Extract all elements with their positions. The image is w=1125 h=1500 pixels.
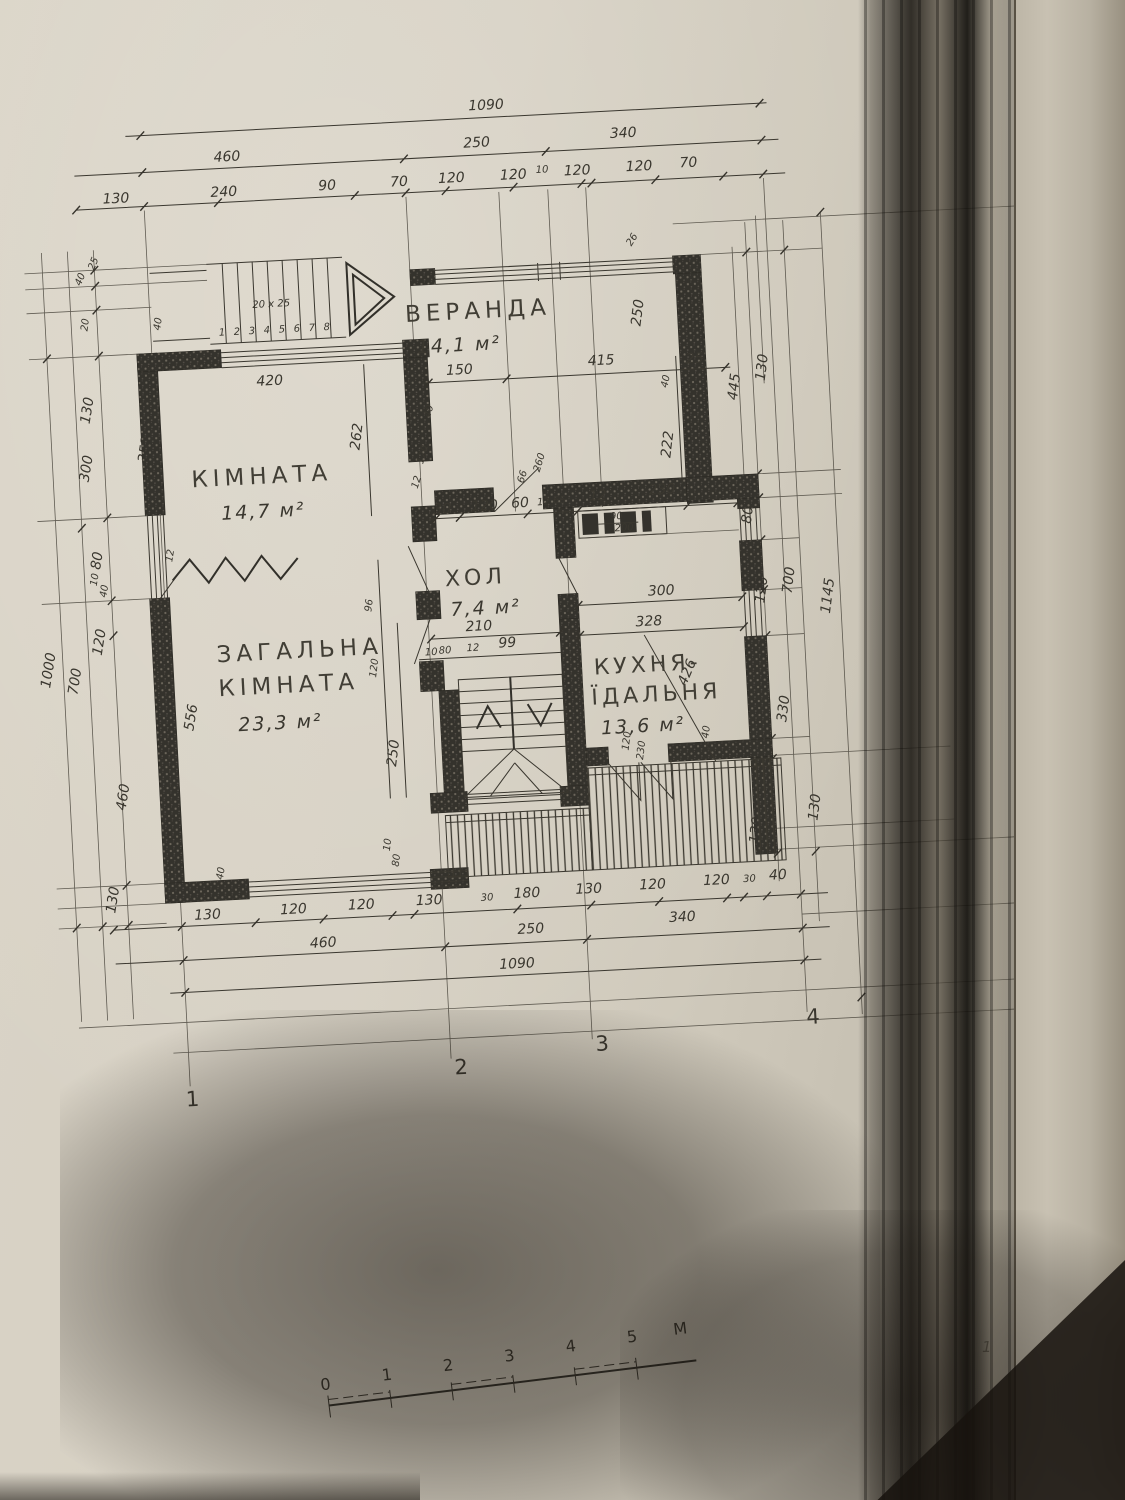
scale-tick: 5: [626, 1327, 638, 1347]
dim-label: 30: [480, 892, 493, 904]
dim-label: 330: [774, 694, 793, 723]
dim-label: 70: [390, 174, 409, 191]
step-number: 4: [263, 325, 270, 336]
dim-label: 30: [743, 873, 756, 885]
dim-label: 300: [648, 582, 676, 599]
dim-label: 120: [438, 170, 466, 187]
room-area-living: 23,3 м²: [238, 710, 323, 736]
dim-label: 210: [465, 618, 493, 635]
dim-label: 1090: [468, 97, 505, 115]
room-area-hall: 7,4 м²: [450, 595, 521, 621]
dim-label: 26: [624, 232, 640, 249]
dim-label: 25: [685, 350, 704, 367]
dim-label: 1090: [499, 955, 536, 973]
dim-label: 130: [805, 793, 824, 822]
dim-label: 120: [348, 896, 376, 913]
photo-scene: 1090 460 250 340 130 240 90 70 120 120 1…: [0, 0, 1125, 1500]
dim-label: 40: [98, 584, 111, 598]
dim-label: 20: [79, 318, 91, 332]
dim-label: 1145: [818, 577, 838, 614]
dim-label: 230: [648, 481, 676, 498]
dim-label: 120: [471, 497, 499, 514]
dim-label: 40: [700, 725, 712, 739]
stair-note: 20 х 25: [252, 298, 290, 311]
dim-label: 460: [309, 934, 337, 951]
room-label-living-2: КІМНАТА: [218, 669, 360, 702]
step-number: 5: [278, 324, 285, 335]
dim-label: 230: [635, 740, 648, 760]
dim-label: 130: [102, 190, 130, 207]
dim-label: 340: [610, 125, 638, 142]
dim-label: 1000: [38, 652, 59, 690]
dim-label: 250: [384, 739, 403, 768]
dim-label: 328: [635, 613, 663, 630]
dim-label: 12: [466, 643, 479, 655]
interior-staircase: [458, 674, 568, 797]
step-number: 7: [308, 323, 316, 334]
dim-label: 12: [410, 475, 424, 490]
entrance-door-symbol: [346, 261, 396, 335]
dim-label: 130: [78, 396, 98, 425]
axis-label: 1: [185, 1087, 200, 1112]
dim-label: 130: [575, 880, 603, 897]
flue-block: [578, 503, 739, 538]
room-label-room: КІМНАТА: [191, 460, 333, 493]
dim-label: 250: [463, 134, 491, 151]
dim-label: 130: [194, 906, 222, 923]
dim-label: 120: [625, 158, 653, 175]
entrance-stairs: 20 х 25 1 2 3 4 5 6 7 8: [149, 255, 396, 348]
dim-label: 10: [382, 838, 394, 852]
dim-label: 340: [669, 909, 697, 926]
scale-tick: 3: [503, 1346, 515, 1366]
dim-label: 460: [114, 783, 134, 812]
page-edge: [1014, 0, 1125, 1500]
dim-label: 120: [703, 872, 731, 889]
scale-bar: 0 1 2 3 4 5 М: [318, 1318, 698, 1418]
axis-label: 3: [595, 1031, 610, 1056]
dim-label: 700: [780, 566, 799, 595]
dim-label: 70: [679, 155, 698, 172]
dim-label: 120: [90, 628, 110, 657]
axis-label: 4: [806, 1004, 821, 1029]
room-label-kitchen-2: ЇДАЛЬНЯ: [591, 678, 722, 711]
dim-label: 250: [629, 298, 648, 327]
dim-label: 12: [588, 488, 607, 505]
scale-tick: 0: [319, 1374, 331, 1394]
dim-label: 445: [725, 372, 744, 401]
scale-tick: 1: [381, 1365, 393, 1385]
dim-label: 262: [347, 422, 366, 451]
dim-label: 60: [511, 495, 530, 512]
room-label-hall: ХОЛ: [444, 564, 506, 592]
dim-label: 556: [181, 703, 201, 732]
terrace: [443, 758, 786, 878]
top-dimension-lines: [68, 98, 785, 214]
dim-label: 120: [563, 162, 591, 179]
dim-label: 460: [213, 148, 241, 165]
dim-label: 66: [553, 495, 566, 507]
room-area-kitchen: 13,6 м²: [600, 713, 685, 739]
step-number: 8: [323, 322, 330, 333]
dim-label: 120: [639, 876, 667, 893]
room-area-veranda: 14,1 м²: [416, 332, 501, 358]
dim-label: 40: [215, 866, 228, 880]
dim-label: 420: [256, 372, 284, 389]
dim-label: 40: [73, 272, 88, 288]
dim-label: 40: [152, 317, 165, 331]
dim-label: 80: [438, 645, 451, 657]
scale-tick: 2: [442, 1355, 454, 1375]
dim-label: 80: [88, 551, 107, 571]
dim-label: 99: [498, 635, 517, 652]
bottom-dimension-lines: [110, 889, 832, 1001]
scale-tick: 4: [565, 1336, 577, 1356]
scale-unit: М: [672, 1318, 688, 1339]
axis-label: 2: [454, 1055, 469, 1080]
dim-label: 40: [422, 404, 436, 419]
dim-label: 10: [535, 164, 548, 176]
dim-label: 200: [614, 522, 634, 534]
dim-label: 222: [658, 430, 677, 459]
dim-label: 180: [513, 885, 541, 902]
room-label-living-1: ЗАГАЛЬНА: [216, 634, 383, 669]
dim-label: 66: [516, 469, 530, 484]
dim-label: 80: [391, 853, 403, 867]
dim-label: 415: [587, 352, 615, 369]
dim-label: 40: [769, 867, 788, 884]
dim-label: 260: [532, 452, 548, 473]
dim-label: 130: [753, 353, 772, 382]
dim-label: 130: [415, 892, 443, 909]
step-number: 3: [248, 326, 255, 337]
dim-label: 120: [280, 901, 308, 918]
room-label-veranda: ВЕРАНДА: [404, 294, 551, 328]
dim-label: 700: [65, 667, 85, 696]
room-area-room: 14,7 м²: [221, 499, 306, 525]
dim-label: 96: [363, 598, 375, 612]
step-number: 2: [234, 327, 241, 338]
step-number: 6: [293, 324, 300, 335]
dim-label: 120: [368, 658, 381, 678]
dim-label: 12: [537, 497, 550, 509]
dim-label: 150: [446, 362, 474, 379]
dim-label: 300: [77, 454, 97, 483]
dim-label: 120: [500, 166, 528, 183]
dim-label: 90: [610, 511, 623, 523]
dim-label: 30: [433, 501, 452, 518]
dim-label: 90: [318, 177, 337, 194]
dim-label: 250: [517, 921, 545, 938]
step-number: 1: [219, 327, 226, 338]
zigzag-partition: [172, 554, 299, 585]
dim-label: 10: [425, 647, 438, 659]
dim-label: 130: [103, 885, 123, 914]
dim-label: 40: [659, 374, 672, 389]
dim-label: 25: [86, 256, 101, 272]
book-spine-shadow: [858, 0, 1014, 1500]
dim-label: 240: [210, 184, 238, 201]
